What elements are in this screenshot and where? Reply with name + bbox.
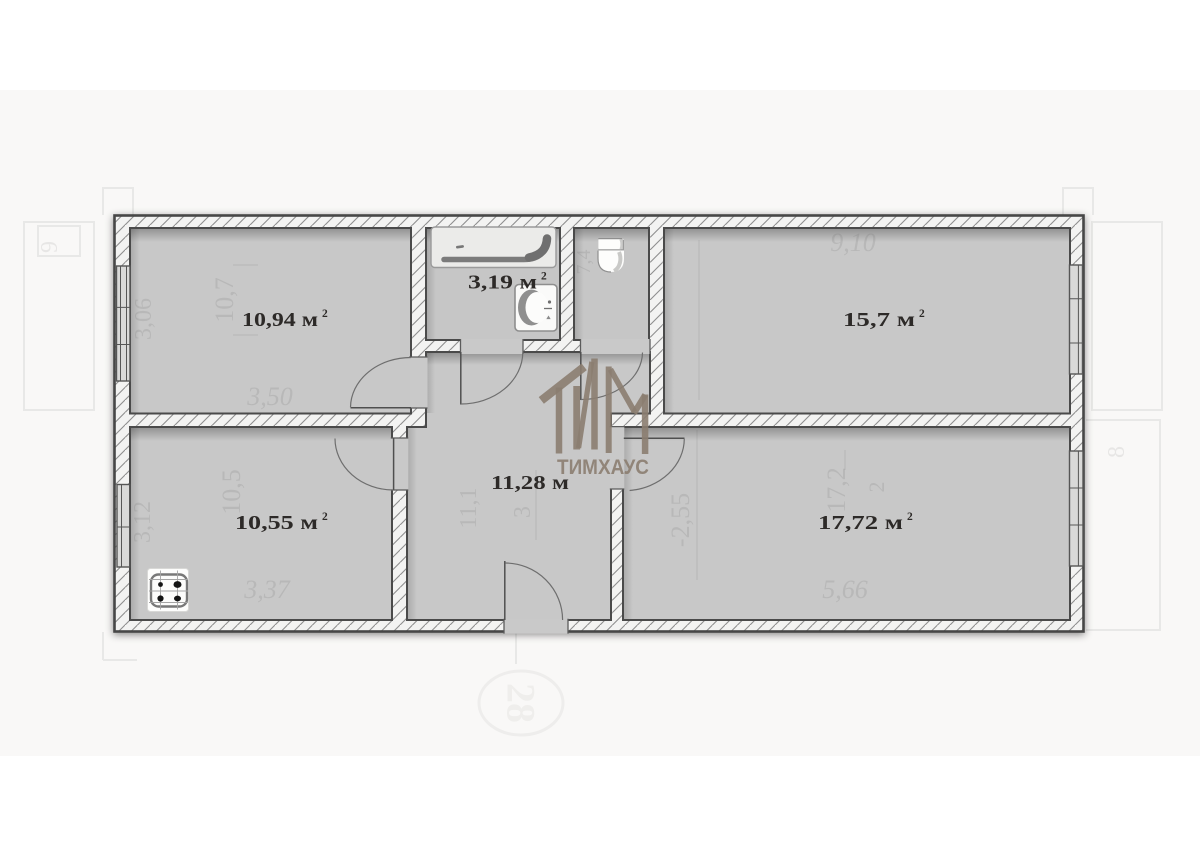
- svg-text:-2,55: -2,55: [666, 493, 695, 547]
- svg-text:8: 8: [1104, 446, 1130, 458]
- svg-text:10,5: 10,5: [217, 469, 246, 515]
- svg-text:15,7 м: 15,7 м: [843, 309, 915, 331]
- svg-text:3: 3: [510, 506, 536, 518]
- svg-text:3,12: 3,12: [130, 501, 156, 543]
- svg-text:3,19 м: 3,19 м: [468, 272, 537, 294]
- svg-text:3,37: 3,37: [243, 575, 291, 604]
- svg-text:2: 2: [322, 308, 328, 320]
- svg-text:3,50: 3,50: [246, 382, 293, 411]
- svg-text:2: 2: [907, 511, 913, 523]
- svg-text:ТИМХАУС: ТИМХАУС: [557, 456, 649, 479]
- svg-text:5,66: 5,66: [822, 575, 868, 604]
- svg-text:2: 2: [919, 308, 925, 320]
- svg-text:2: 2: [864, 482, 889, 493]
- svg-text:2: 2: [541, 271, 547, 283]
- svg-text:17,72 м: 17,72 м: [818, 512, 903, 534]
- svg-text:2: 2: [322, 511, 328, 523]
- svg-text:11,1: 11,1: [456, 487, 482, 528]
- svg-text:7,4: 7,4: [573, 250, 595, 275]
- svg-text:10,55 м: 10,55 м: [235, 512, 318, 534]
- svg-text:17,2: 17,2: [822, 467, 851, 513]
- svg-text:10,7: 10,7: [210, 277, 239, 323]
- svg-text:3,06: 3,06: [131, 298, 157, 340]
- svg-text:10,94 м: 10,94 м: [242, 309, 318, 331]
- svg-text:28: 28: [499, 683, 544, 723]
- svg-text:9,10: 9,10: [830, 228, 876, 257]
- svg-text:9: 9: [37, 241, 63, 253]
